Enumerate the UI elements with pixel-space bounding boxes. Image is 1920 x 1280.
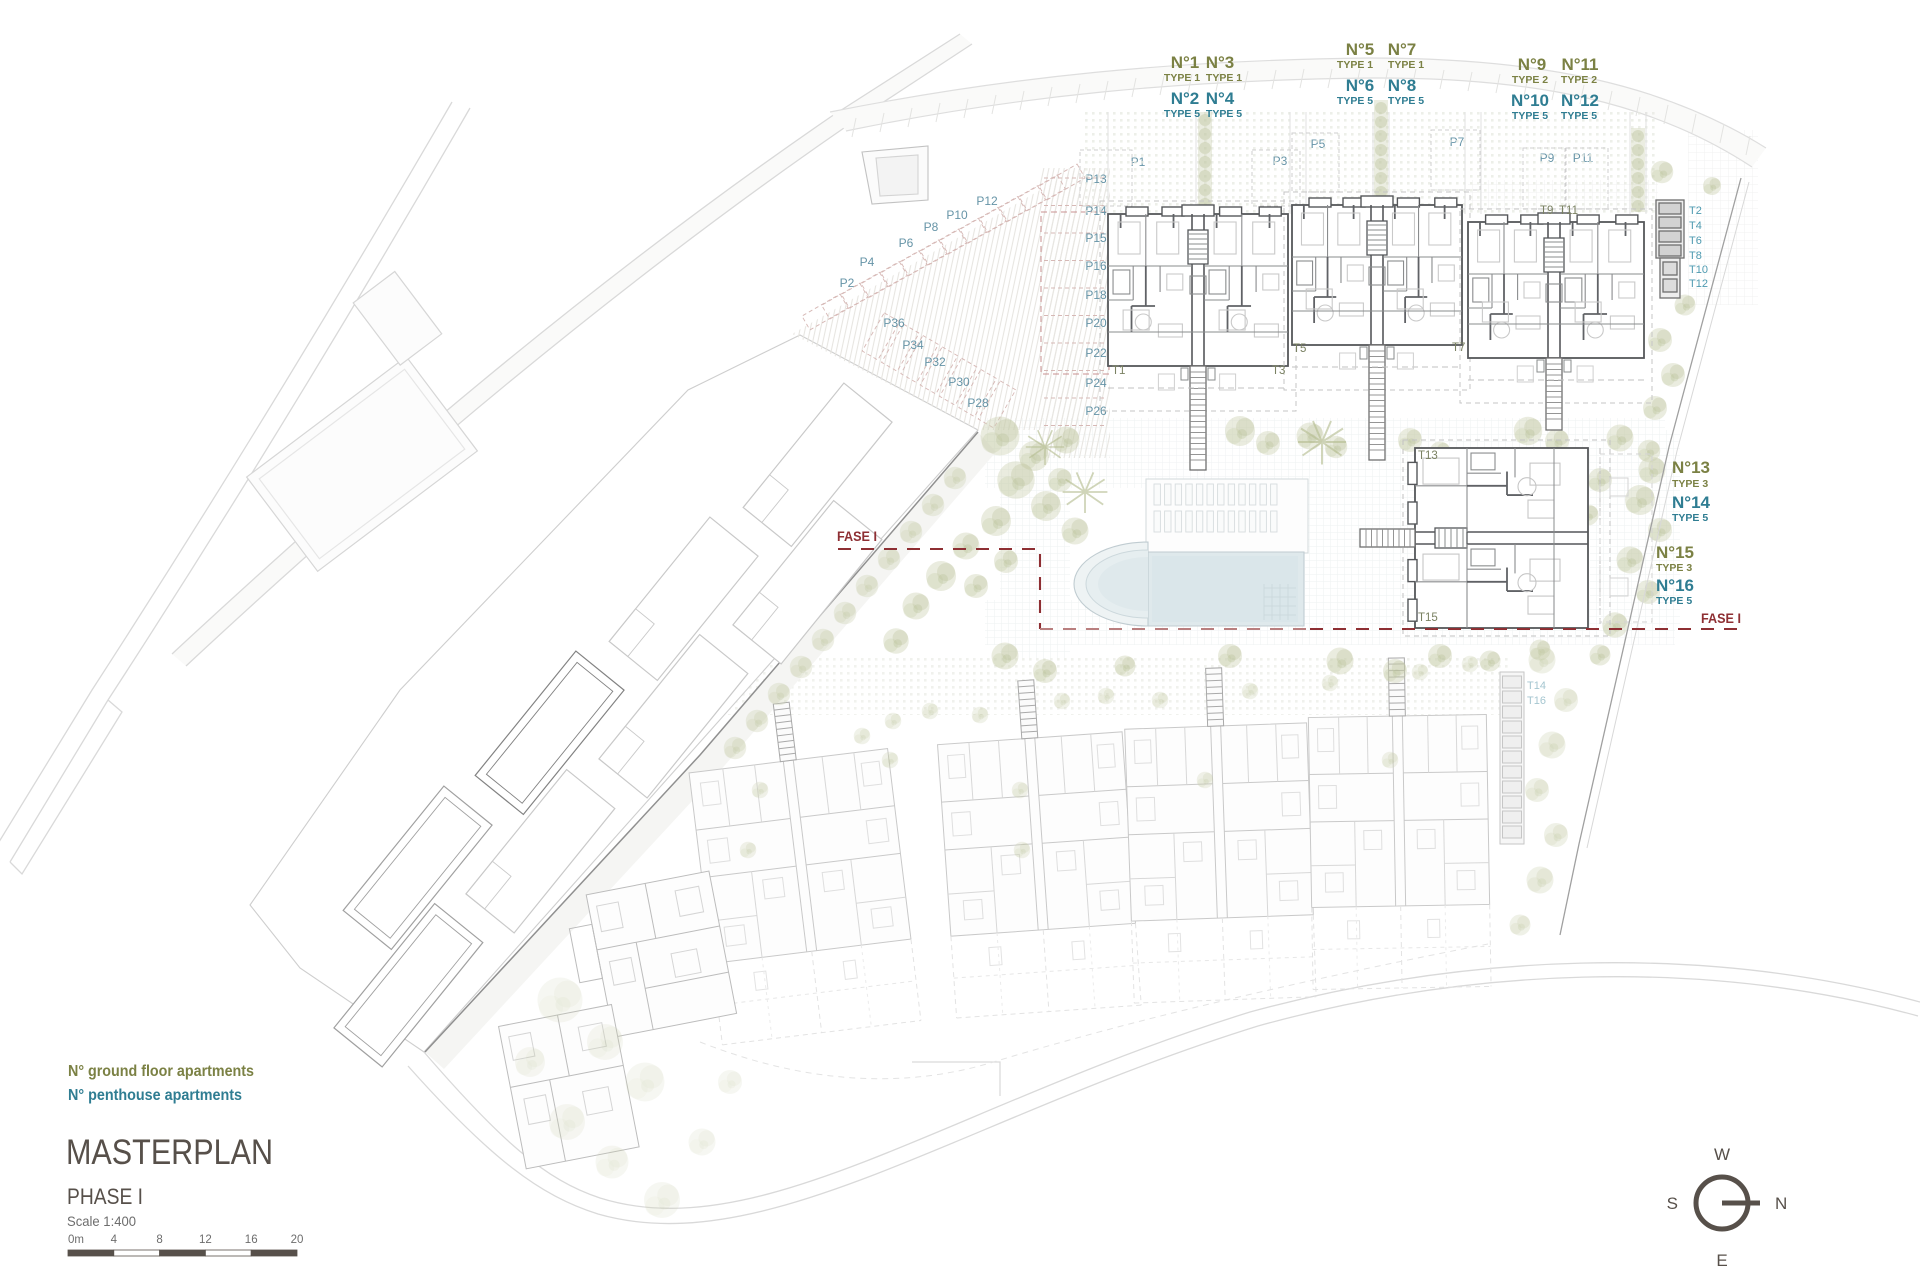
svg-text:N° penthouse apartments: N° penthouse apartments	[68, 1087, 242, 1104]
svg-text:P12: P12	[976, 194, 998, 208]
svg-text:N°16: N°16	[1656, 576, 1694, 595]
svg-text:12: 12	[199, 1234, 212, 1246]
svg-text:TYPE 3: TYPE 3	[1672, 478, 1708, 490]
svg-text:0m: 0m	[68, 1234, 84, 1246]
svg-text:Scale 1:400: Scale 1:400	[67, 1213, 136, 1229]
svg-text:T7: T7	[1452, 342, 1465, 354]
svg-text:8: 8	[156, 1234, 162, 1246]
svg-text:T11: T11	[1559, 205, 1578, 217]
svg-text:T4: T4	[1689, 220, 1702, 232]
svg-text:P32: P32	[924, 355, 946, 369]
svg-text:N°4: N°4	[1206, 89, 1235, 108]
svg-text:N°7: N°7	[1388, 40, 1417, 59]
svg-text:TYPE 1: TYPE 1	[1337, 59, 1373, 71]
svg-text:TYPE 1: TYPE 1	[1206, 72, 1242, 84]
svg-text:TYPE 5: TYPE 5	[1561, 110, 1597, 122]
svg-text:T9: T9	[1540, 205, 1553, 217]
svg-text:P4: P4	[860, 255, 875, 269]
svg-text:P24: P24	[1085, 376, 1107, 390]
svg-text:T14: T14	[1527, 680, 1546, 692]
svg-text:FASE I: FASE I	[1701, 610, 1741, 626]
svg-text:T5: T5	[1293, 343, 1306, 355]
svg-text:TYPE 5: TYPE 5	[1388, 95, 1424, 107]
svg-text:S: S	[1667, 1194, 1678, 1213]
svg-text:P6: P6	[899, 236, 914, 250]
svg-text:TYPE 1: TYPE 1	[1388, 59, 1424, 71]
svg-text:N° ground floor apartments: N° ground floor apartments	[68, 1063, 254, 1080]
svg-text:P2: P2	[840, 276, 855, 290]
svg-text:MASTERPLAN: MASTERPLAN	[66, 1133, 273, 1172]
svg-text:P36: P36	[883, 316, 905, 330]
svg-text:N°8: N°8	[1388, 76, 1417, 95]
svg-text:T2: T2	[1689, 205, 1702, 217]
svg-text:TYPE 3: TYPE 3	[1656, 562, 1692, 574]
svg-text:T6: T6	[1689, 235, 1702, 247]
svg-text:TYPE 2: TYPE 2	[1561, 74, 1597, 86]
svg-text:N°14: N°14	[1672, 493, 1711, 512]
svg-text:P18: P18	[1085, 288, 1107, 302]
svg-text:T13: T13	[1418, 450, 1438, 462]
svg-text:N°5: N°5	[1346, 40, 1375, 59]
svg-text:T16: T16	[1527, 695, 1546, 707]
svg-text:T15: T15	[1418, 612, 1438, 624]
svg-text:T8: T8	[1689, 250, 1702, 262]
svg-text:N°3: N°3	[1206, 53, 1235, 72]
svg-text:16: 16	[245, 1234, 258, 1246]
svg-text:P28: P28	[967, 396, 989, 410]
svg-text:TYPE 5: TYPE 5	[1337, 95, 1373, 107]
svg-text:N°12: N°12	[1561, 91, 1599, 110]
svg-text:TYPE 5: TYPE 5	[1512, 110, 1548, 122]
svg-text:N°2: N°2	[1171, 89, 1200, 108]
svg-text:T3: T3	[1272, 365, 1285, 377]
svg-text:P16: P16	[1085, 259, 1107, 273]
svg-text:PHASE I: PHASE I	[67, 1184, 143, 1209]
svg-text:E: E	[1716, 1251, 1727, 1270]
svg-text:N°15: N°15	[1656, 543, 1694, 562]
svg-text:N°13: N°13	[1672, 458, 1710, 477]
svg-text:N°10: N°10	[1511, 91, 1549, 110]
svg-text:W: W	[1714, 1145, 1730, 1164]
svg-text:20: 20	[291, 1234, 304, 1246]
svg-text:P15: P15	[1085, 231, 1107, 245]
svg-text:N: N	[1775, 1194, 1787, 1213]
svg-text:P34: P34	[902, 338, 924, 352]
svg-text:TYPE 5: TYPE 5	[1164, 108, 1200, 120]
svg-text:N°9: N°9	[1518, 55, 1547, 74]
svg-text:N°1: N°1	[1171, 53, 1200, 72]
svg-text:T1: T1	[1112, 365, 1125, 377]
svg-text:TYPE 5: TYPE 5	[1206, 108, 1242, 120]
svg-text:TYPE 5: TYPE 5	[1656, 595, 1692, 607]
svg-text:P30: P30	[948, 375, 970, 389]
svg-text:FASE I: FASE I	[837, 528, 877, 544]
svg-text:N°6: N°6	[1346, 76, 1375, 95]
svg-text:P22: P22	[1085, 346, 1107, 360]
svg-text:P8: P8	[924, 220, 939, 234]
svg-text:TYPE 1: TYPE 1	[1164, 72, 1200, 84]
svg-text:TYPE 5: TYPE 5	[1672, 512, 1708, 524]
svg-text:TYPE 2: TYPE 2	[1512, 74, 1548, 86]
svg-text:N°11: N°11	[1561, 55, 1598, 74]
svg-text:T12: T12	[1689, 278, 1708, 290]
svg-text:P20: P20	[1085, 316, 1107, 330]
svg-text:P10: P10	[946, 208, 968, 222]
svg-text:T10: T10	[1689, 264, 1708, 276]
svg-text:4: 4	[111, 1234, 118, 1246]
